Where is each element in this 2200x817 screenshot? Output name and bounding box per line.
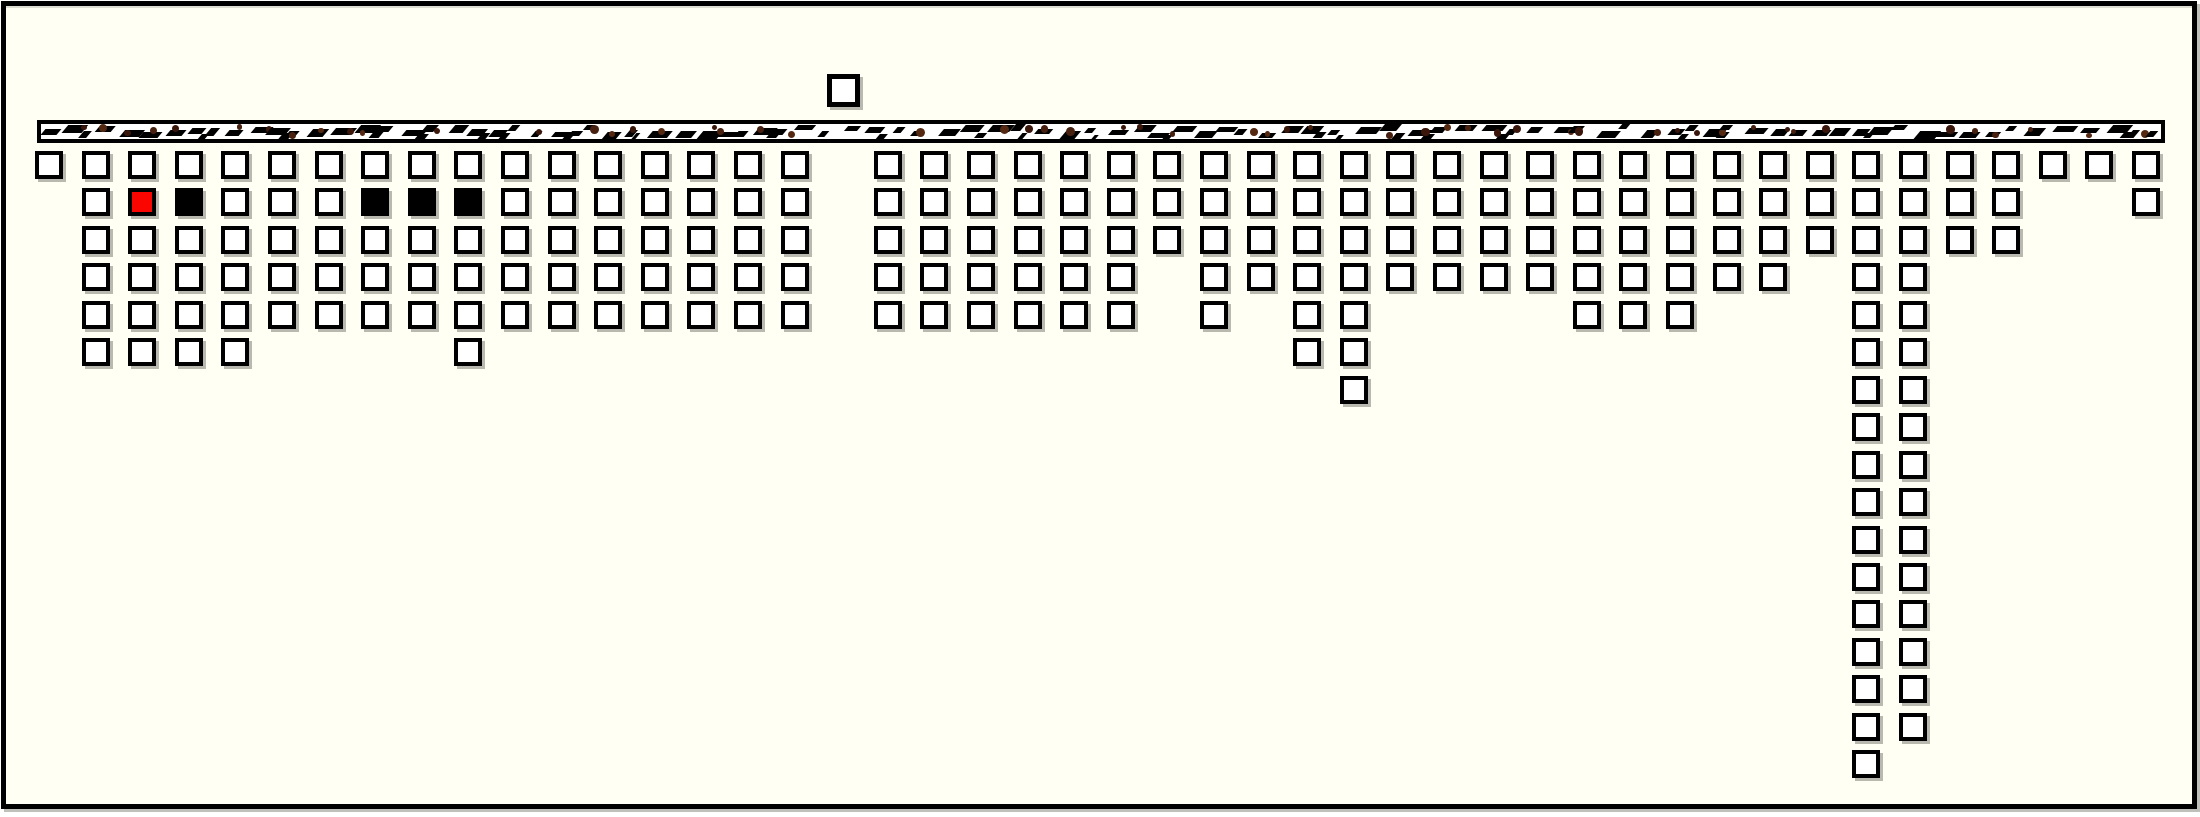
- strip-dot: [1694, 130, 1701, 137]
- strip-slash-mark: [1868, 127, 1894, 135]
- grid-square[interactable]: [2132, 151, 2160, 179]
- strip-slash-mark: [675, 131, 697, 138]
- grid-square[interactable]: [920, 301, 948, 329]
- grid-square[interactable]: [82, 188, 110, 216]
- grid-square[interactable]: [594, 151, 622, 179]
- strip-slash-mark: [1959, 132, 1981, 138]
- strip-dot: [1170, 131, 1175, 136]
- grid-square-black[interactable]: [361, 188, 389, 216]
- grid-square[interactable]: [221, 263, 249, 291]
- grid-square[interactable]: [315, 151, 343, 179]
- strip-slash-mark: [374, 126, 394, 132]
- grid-square[interactable]: [1946, 188, 1974, 216]
- grid-square[interactable]: [1340, 188, 1368, 216]
- grid-square[interactable]: [1433, 188, 1461, 216]
- grid-square[interactable]: [1107, 301, 1135, 329]
- grid-square[interactable]: [1480, 151, 1508, 179]
- grid-square[interactable]: [1899, 675, 1927, 703]
- strip-dot: [609, 131, 615, 137]
- strip-slash-mark: [1092, 135, 1100, 139]
- grid-square[interactable]: [1107, 188, 1135, 216]
- grid-square[interactable]: [967, 151, 995, 179]
- grid-square[interactable]: [687, 151, 715, 179]
- grid-square[interactable]: [1852, 526, 1880, 554]
- grid-square[interactable]: [1386, 226, 1414, 254]
- strip-dot: [360, 130, 365, 135]
- grid-square[interactable]: [454, 151, 482, 179]
- strip-slash-mark: [41, 129, 62, 135]
- grid-square[interactable]: [1899, 376, 1927, 404]
- grid-square[interactable]: [35, 151, 63, 179]
- strip-slash-mark: [369, 132, 384, 138]
- grid-square[interactable]: [1386, 188, 1414, 216]
- grid-square[interactable]: [1666, 226, 1694, 254]
- grid-square[interactable]: [734, 226, 762, 254]
- strip-slash-mark: [844, 126, 861, 131]
- grid-square[interactable]: [548, 263, 576, 291]
- grid-square[interactable]: [82, 226, 110, 254]
- grid-square[interactable]: [128, 338, 156, 366]
- strip-dot: [1575, 127, 1583, 135]
- grid-square[interactable]: [1340, 301, 1368, 329]
- grid-square[interactable]: [1526, 263, 1554, 291]
- grid-square[interactable]: [1806, 188, 1834, 216]
- strip-dot: [1444, 124, 1451, 131]
- grid-square[interactable]: [1060, 226, 1088, 254]
- grid-square[interactable]: [361, 151, 389, 179]
- grid-square[interactable]: [454, 301, 482, 329]
- grid-square[interactable]: [221, 301, 249, 329]
- grid-square[interactable]: [1713, 151, 1741, 179]
- grid-square[interactable]: [1060, 188, 1088, 216]
- strip-dot: [1308, 125, 1313, 130]
- grid-square[interactable]: [268, 151, 296, 179]
- grid-square[interactable]: [874, 301, 902, 329]
- grid-square[interactable]: [1852, 413, 1880, 441]
- strip-dot: [1946, 125, 1954, 133]
- grid-square[interactable]: [268, 263, 296, 291]
- grid-square[interactable]: [1899, 226, 1927, 254]
- grid-square[interactable]: [175, 226, 203, 254]
- strip-slash-mark: [205, 128, 220, 136]
- grid-square[interactable]: [1899, 413, 1927, 441]
- grid-square[interactable]: [1759, 188, 1787, 216]
- grid-square[interactable]: [454, 338, 482, 366]
- grid-square[interactable]: [734, 263, 762, 291]
- grid-square[interactable]: [1386, 151, 1414, 179]
- grid-square-red[interactable]: [128, 188, 156, 216]
- grid-square[interactable]: [1619, 263, 1647, 291]
- grid-square[interactable]: [1713, 263, 1741, 291]
- grid-square[interactable]: [1247, 263, 1275, 291]
- grid-square[interactable]: [501, 301, 529, 329]
- grid-square[interactable]: [1852, 338, 1880, 366]
- grid-square[interactable]: [82, 338, 110, 366]
- grid-square[interactable]: [687, 188, 715, 216]
- grid-square[interactable]: [315, 263, 343, 291]
- grid-square[interactable]: [781, 151, 809, 179]
- strip-dot: [1265, 131, 1271, 137]
- grid-square[interactable]: [1666, 151, 1694, 179]
- grid-square[interactable]: [82, 301, 110, 329]
- grid-square[interactable]: [1014, 226, 1042, 254]
- strip-dot: [1494, 129, 1502, 137]
- grid-square[interactable]: [1526, 226, 1554, 254]
- grid-square[interactable]: [361, 226, 389, 254]
- grid-square[interactable]: [1247, 151, 1275, 179]
- strip-dot: [1066, 127, 1075, 136]
- grid-square[interactable]: [1806, 151, 1834, 179]
- grid-square[interactable]: [1852, 563, 1880, 591]
- game-board: [0, 0, 2200, 817]
- grid-square[interactable]: [1899, 488, 1927, 516]
- strip-slash-mark: [794, 125, 817, 130]
- grid-square[interactable]: [920, 263, 948, 291]
- grid-square[interactable]: [687, 263, 715, 291]
- grid-square[interactable]: [1293, 151, 1321, 179]
- grid-square[interactable]: [1153, 226, 1181, 254]
- strip-dot: [1000, 125, 1009, 134]
- conveyor-strip: [37, 120, 2165, 143]
- grid-square[interactable]: [315, 226, 343, 254]
- grid-square[interactable]: [781, 263, 809, 291]
- grid-square[interactable]: [1946, 226, 1974, 254]
- grid-square[interactable]: [1713, 188, 1741, 216]
- grid-square[interactable]: [1340, 338, 1368, 366]
- grid-square[interactable]: [454, 226, 482, 254]
- grid-square[interactable]: [641, 188, 669, 216]
- grid-square[interactable]: [1992, 226, 2020, 254]
- grid-square[interactable]: [1899, 526, 1927, 554]
- grid-square[interactable]: [1480, 226, 1508, 254]
- grid-square[interactable]: [687, 301, 715, 329]
- strip-slash-mark: [1527, 127, 1544, 133]
- grid-square[interactable]: [1060, 263, 1088, 291]
- grid-square[interactable]: [1946, 151, 1974, 179]
- strip-dot: [1791, 129, 1796, 134]
- grid-square[interactable]: [967, 188, 995, 216]
- grid-square[interactable]: [175, 151, 203, 179]
- grid-square[interactable]: [1899, 188, 1927, 216]
- grid-square[interactable]: [408, 263, 436, 291]
- grid-square-black[interactable]: [408, 188, 436, 216]
- grid-square[interactable]: [175, 338, 203, 366]
- grid-square[interactable]: [641, 151, 669, 179]
- grid-square[interactable]: [268, 301, 296, 329]
- grid-square[interactable]: [1852, 600, 1880, 628]
- grid-square[interactable]: [1107, 151, 1135, 179]
- grid-square[interactable]: [1200, 151, 1228, 179]
- grid-square[interactable]: [454, 263, 482, 291]
- grid-square[interactable]: [548, 151, 576, 179]
- strip-dot: [1822, 125, 1830, 133]
- grid-square[interactable]: [1480, 263, 1508, 291]
- grid-square[interactable]: [548, 226, 576, 254]
- grid-square[interactable]: [1014, 263, 1042, 291]
- grid-square[interactable]: [408, 301, 436, 329]
- grid-square[interactable]: [1293, 338, 1321, 366]
- grid-square[interactable]: [687, 226, 715, 254]
- strip-slash-mark: [1391, 133, 1404, 139]
- strip-slash-mark: [1596, 131, 1621, 138]
- grid-square[interactable]: [1852, 638, 1880, 666]
- grid-square[interactable]: [1340, 263, 1368, 291]
- grid-square[interactable]: [1247, 226, 1275, 254]
- grid-square[interactable]: [1852, 451, 1880, 479]
- grid-square[interactable]: [920, 151, 948, 179]
- strip-dot: [1785, 127, 1790, 132]
- grid-square[interactable]: [874, 226, 902, 254]
- strip-dot: [1513, 125, 1521, 133]
- grid-square[interactable]: [1852, 713, 1880, 741]
- grid-square[interactable]: [1806, 226, 1834, 254]
- grid-square[interactable]: [548, 188, 576, 216]
- grid-square[interactable]: [1340, 226, 1368, 254]
- grid-square[interactable]: [920, 188, 948, 216]
- strip-dot: [1751, 125, 1756, 130]
- strip-slash-mark: [973, 133, 987, 138]
- strip-slash-mark: [416, 134, 430, 139]
- grid-square[interactable]: [1340, 376, 1368, 404]
- strip-dot: [1284, 126, 1291, 133]
- strip-dot: [1025, 125, 1033, 133]
- grid-square[interactable]: [967, 226, 995, 254]
- grid-square[interactable]: [1852, 263, 1880, 291]
- grid-square[interactable]: [1852, 151, 1880, 179]
- grid-square[interactable]: [1899, 600, 1927, 628]
- grid-square[interactable]: [2085, 151, 2113, 179]
- strip-slash-mark: [1108, 130, 1130, 135]
- strip-dot: [237, 124, 243, 130]
- strip-slash-mark: [449, 125, 469, 133]
- grid-square[interactable]: [1852, 750, 1880, 778]
- grid-square[interactable]: [315, 301, 343, 329]
- grid-square[interactable]: [1666, 188, 1694, 216]
- grid-square[interactable]: [1666, 263, 1694, 291]
- grid-square[interactable]: [1992, 188, 2020, 216]
- grid-square[interactable]: [1992, 151, 2020, 179]
- grid-square[interactable]: [175, 301, 203, 329]
- grid-square[interactable]: [82, 263, 110, 291]
- grid-square[interactable]: [1852, 226, 1880, 254]
- grid-square[interactable]: [1340, 151, 1368, 179]
- grid-square[interactable]: [1619, 188, 1647, 216]
- strip-dot: [590, 125, 599, 134]
- grid-square[interactable]: [641, 301, 669, 329]
- grid-square[interactable]: [1619, 301, 1647, 329]
- grid-square[interactable]: [1899, 301, 1927, 329]
- grid-square[interactable]: [268, 188, 296, 216]
- grid-square[interactable]: [641, 226, 669, 254]
- grid-square[interactable]: [734, 301, 762, 329]
- strip-dot: [1465, 125, 1471, 131]
- strip-slash-mark: [893, 127, 907, 133]
- grid-square[interactable]: [594, 188, 622, 216]
- grid-square[interactable]: [82, 151, 110, 179]
- strip-dot: [1041, 125, 1049, 133]
- grid-square[interactable]: [175, 263, 203, 291]
- strip-dot: [1992, 132, 1998, 138]
- grid-square[interactable]: [408, 226, 436, 254]
- grid-square[interactable]: [1107, 226, 1135, 254]
- grid-square[interactable]: [361, 263, 389, 291]
- strip-slash-mark: [877, 134, 889, 139]
- grid-square-black[interactable]: [454, 188, 482, 216]
- grid-square[interactable]: [221, 188, 249, 216]
- grid-square[interactable]: [641, 263, 669, 291]
- strip-dot: [124, 130, 130, 136]
- grid-square[interactable]: [1573, 301, 1601, 329]
- grid-square[interactable]: [408, 151, 436, 179]
- grid-square[interactable]: [2132, 188, 2160, 216]
- grid-square[interactable]: [1899, 638, 1927, 666]
- grid-square[interactable]: [315, 188, 343, 216]
- grid-square[interactable]: [501, 188, 529, 216]
- grid-square[interactable]: [1200, 188, 1228, 216]
- grid-square[interactable]: [128, 151, 156, 179]
- strip-slash-mark: [1719, 125, 1733, 130]
- strip-dot: [630, 126, 636, 132]
- grid-square[interactable]: [1293, 226, 1321, 254]
- grid-square[interactable]: [128, 301, 156, 329]
- grid-square[interactable]: [1619, 151, 1647, 179]
- strip-dot: [172, 125, 179, 132]
- grid-square[interactable]: [1666, 301, 1694, 329]
- grid-square[interactable]: [1852, 301, 1880, 329]
- grid-square[interactable]: [1060, 151, 1088, 179]
- grid-square[interactable]: [1852, 675, 1880, 703]
- strip-dot: [81, 125, 87, 131]
- grid-square[interactable]: [967, 263, 995, 291]
- grid-square[interactable]: [1759, 226, 1787, 254]
- grid-square[interactable]: [1200, 263, 1228, 291]
- grid-square[interactable]: [1573, 263, 1601, 291]
- grid-square[interactable]: [1153, 151, 1181, 179]
- grid-square[interactable]: [594, 301, 622, 329]
- strip-slash-mark: [2126, 130, 2140, 138]
- strip-dot: [1972, 128, 1978, 134]
- grid-square[interactable]: [1014, 188, 1042, 216]
- grid-square[interactable]: [1899, 151, 1927, 179]
- grid-square[interactable]: [361, 301, 389, 329]
- grid-square[interactable]: [874, 151, 902, 179]
- grid-square[interactable]: [967, 301, 995, 329]
- strip-slash-mark: [1891, 125, 1908, 130]
- grid-square[interactable]: [1153, 188, 1181, 216]
- grid-square[interactable]: [501, 151, 529, 179]
- grid-square[interactable]: [1899, 263, 1927, 291]
- grid-square[interactable]: [1852, 188, 1880, 216]
- grid-square[interactable]: [501, 226, 529, 254]
- grid-square[interactable]: [1899, 338, 1927, 366]
- strip-dot: [347, 128, 354, 135]
- strip-dot: [788, 131, 795, 138]
- grid-square[interactable]: [874, 188, 902, 216]
- grid-square[interactable]: [268, 226, 296, 254]
- grid-square[interactable]: [1247, 188, 1275, 216]
- grid-square[interactable]: [1293, 263, 1321, 291]
- grid-square[interactable]: [1293, 301, 1321, 329]
- grid-square[interactable]: [1014, 151, 1042, 179]
- grid-square[interactable]: [1014, 301, 1042, 329]
- strip-dot: [536, 129, 542, 135]
- strip-dot: [1386, 132, 1393, 139]
- grid-square[interactable]: [734, 188, 762, 216]
- grid-square[interactable]: [1200, 226, 1228, 254]
- strip-slash-mark: [865, 127, 886, 133]
- grid-square[interactable]: [128, 226, 156, 254]
- strip-slash-mark: [1932, 132, 1958, 137]
- strip-dot: [2086, 133, 2092, 139]
- grid-square[interactable]: [1433, 263, 1461, 291]
- grid-square[interactable]: [1713, 226, 1741, 254]
- grid-square[interactable]: [781, 301, 809, 329]
- grid-square[interactable]: [1899, 713, 1927, 741]
- grid-square[interactable]: [1433, 226, 1461, 254]
- grid-square[interactable]: [221, 151, 249, 179]
- strip-dot: [1654, 129, 1661, 136]
- grid-square[interactable]: [1852, 376, 1880, 404]
- grid-square[interactable]: [1899, 563, 1927, 591]
- grid-square[interactable]: [1433, 151, 1461, 179]
- grid-square[interactable]: [221, 226, 249, 254]
- grid-square[interactable]: [1852, 488, 1880, 516]
- grid-square[interactable]: [1759, 151, 1787, 179]
- grid-square[interactable]: [594, 263, 622, 291]
- grid-square[interactable]: [2039, 151, 2067, 179]
- grid-square[interactable]: [1200, 301, 1228, 329]
- strip-slash-mark: [2004, 126, 2017, 131]
- grid-square[interactable]: [1526, 188, 1554, 216]
- grid-square[interactable]: [1573, 226, 1601, 254]
- grid-square[interactable]: [1573, 151, 1601, 179]
- grid-square[interactable]: [1619, 226, 1647, 254]
- grid-square[interactable]: [1480, 188, 1508, 216]
- grid-square-black[interactable]: [175, 188, 203, 216]
- strip-slash-mark: [1618, 124, 1630, 129]
- grid-square[interactable]: [734, 151, 762, 179]
- grid-square[interactable]: [1899, 451, 1927, 479]
- floating-square[interactable]: [827, 74, 860, 107]
- strip-slash-mark: [1084, 128, 1097, 133]
- strip-slash-mark: [938, 129, 961, 136]
- grid-square[interactable]: [781, 226, 809, 254]
- grid-square[interactable]: [221, 338, 249, 366]
- grid-square[interactable]: [594, 226, 622, 254]
- strip-dot: [1250, 128, 1258, 136]
- grid-square[interactable]: [1573, 188, 1601, 216]
- strip-slash-mark: [508, 125, 521, 131]
- strip-dot: [434, 128, 440, 134]
- strip-dot: [1137, 124, 1142, 129]
- grid-square[interactable]: [128, 263, 156, 291]
- grid-square[interactable]: [1293, 188, 1321, 216]
- grid-square[interactable]: [1386, 263, 1414, 291]
- grid-square[interactable]: [1107, 263, 1135, 291]
- strip-dot: [916, 128, 925, 137]
- grid-square[interactable]: [1060, 301, 1088, 329]
- grid-square[interactable]: [920, 226, 948, 254]
- grid-square[interactable]: [781, 188, 809, 216]
- grid-square[interactable]: [1759, 263, 1787, 291]
- strip-slash-mark: [224, 130, 243, 136]
- strip-slash-mark: [818, 131, 830, 137]
- grid-square[interactable]: [548, 301, 576, 329]
- strip-slash-mark: [1173, 126, 1197, 132]
- grid-square[interactable]: [874, 263, 902, 291]
- grid-square[interactable]: [1526, 151, 1554, 179]
- grid-square[interactable]: [501, 263, 529, 291]
